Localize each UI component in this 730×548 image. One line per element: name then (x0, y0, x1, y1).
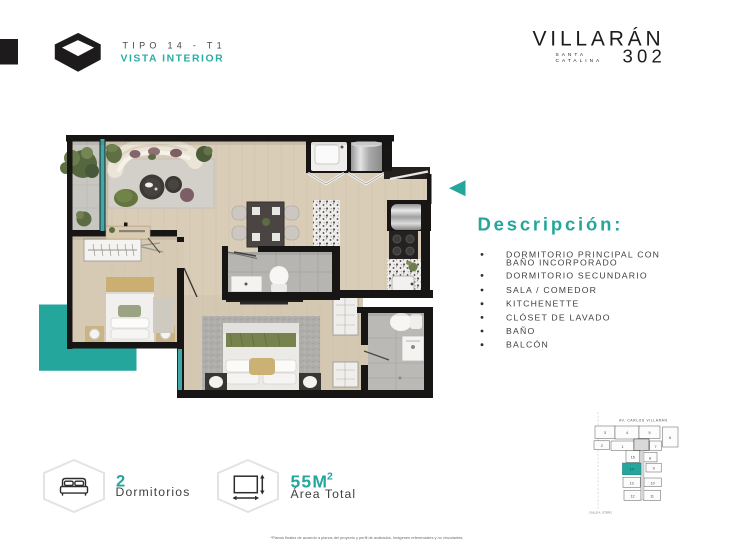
svg-text:DORMITORIO SECUNDARIO: DORMITORIO SECUNDARIO (506, 270, 648, 280)
svg-text:CATALINA: CATALINA (556, 58, 603, 64)
svg-text:13: 13 (630, 481, 634, 485)
svg-text:8: 8 (649, 456, 651, 460)
svg-text:Descripción:: Descripción: (478, 213, 624, 234)
svg-text:*Planos finales de acuerdo a p: *Planos finales de acuerdo a planos del … (271, 535, 464, 540)
svg-text:KITCHENETTE: KITCHENETTE (506, 299, 580, 309)
svg-text:TIPO 14 - T1: TIPO 14 - T1 (123, 41, 226, 51)
svg-text:7: 7 (654, 445, 656, 449)
svg-text:10: 10 (651, 481, 655, 485)
svg-text:BALCÓN: BALCÓN (506, 340, 549, 350)
svg-text:4: 4 (626, 431, 628, 435)
svg-text:SALA / COMEDOR: SALA / COMEDOR (506, 285, 597, 295)
svg-text:Área Total: Área Total (291, 486, 357, 501)
svg-text:14: 14 (630, 468, 634, 472)
svg-text:VISTA INTERIOR: VISTA INTERIOR (121, 53, 225, 64)
svg-text:3: 3 (604, 431, 606, 435)
svg-text:CALLE A. OTERO: CALLE A. OTERO (589, 511, 613, 515)
svg-text:BAÑO INCORPORADO: BAÑO INCORPORADO (506, 258, 618, 268)
svg-text:15: 15 (631, 455, 635, 459)
svg-text:302: 302 (623, 46, 666, 67)
svg-text:AV. CARLOS VILLARÁN: AV. CARLOS VILLARÁN (619, 419, 668, 423)
svg-text:SANTA: SANTA (556, 52, 587, 58)
svg-text:9: 9 (653, 467, 655, 471)
svg-text:BAÑO: BAÑO (506, 326, 535, 336)
svg-text:12: 12 (630, 494, 634, 498)
svg-text:2: 2 (327, 471, 333, 483)
svg-text:5: 5 (648, 431, 650, 435)
svg-text:Dormitorios: Dormitorios (116, 485, 191, 499)
svg-text:CLÓSET DE LAVADO: CLÓSET DE LAVADO (506, 312, 611, 322)
svg-text:2: 2 (601, 444, 603, 448)
svg-text:11: 11 (650, 494, 654, 498)
svg-text:6: 6 (669, 436, 671, 440)
svg-text:1: 1 (621, 445, 623, 449)
